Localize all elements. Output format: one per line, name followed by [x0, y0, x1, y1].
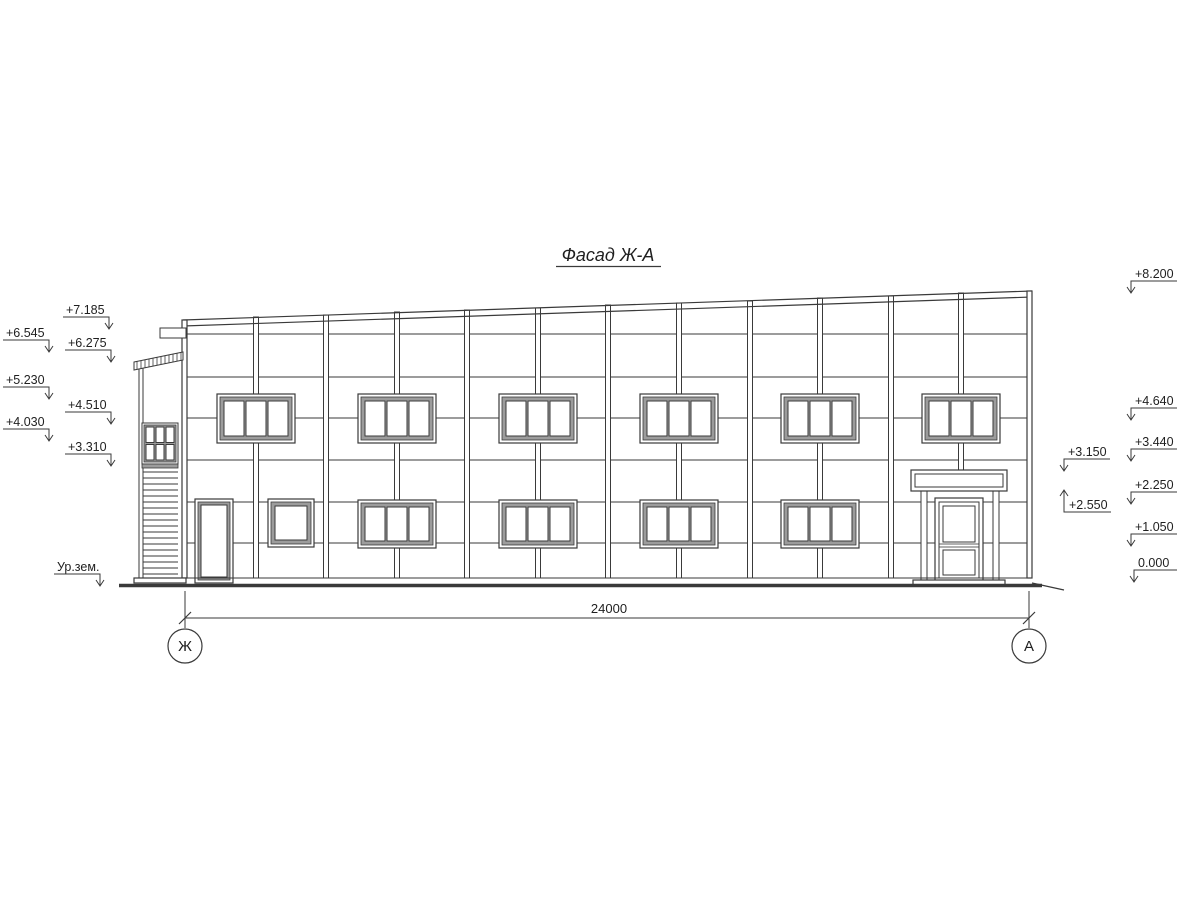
entrance [911, 470, 1007, 586]
elevation-value: +2.250 [1135, 478, 1174, 492]
elevation-value: +2.550 [1069, 498, 1108, 512]
dimension-label: 24000 [591, 601, 627, 616]
stair-tower-left-wall [139, 362, 143, 578]
facade-drawing-canvas: Фасад Ж-А [0, 0, 1200, 900]
elevation-value: +3.440 [1135, 435, 1174, 449]
entrance-door [935, 498, 983, 582]
elevation-value: 0.000 [1138, 556, 1169, 570]
page-title: Фасад Ж-А [562, 245, 655, 265]
elevation-value: +6.545 [6, 326, 45, 340]
elevation-mark: +4.030 [3, 415, 53, 441]
triple-window [217, 394, 295, 443]
elevation-mark: +5.230 [3, 373, 53, 399]
elevation-mark: +3.310 [65, 440, 115, 466]
elevation-mark: 0.000 [1130, 556, 1177, 582]
stair-tower-window [142, 423, 178, 464]
elevation-mark: +7.185 [63, 303, 113, 329]
entrance-canopy [911, 470, 1007, 491]
side-door [195, 499, 233, 583]
dimension: 24000 Ж А [168, 591, 1046, 663]
axis-marker-zh: Ж [168, 629, 202, 663]
triple-window [499, 394, 577, 443]
square-window [268, 499, 314, 547]
axis-marker-a: А [1012, 629, 1046, 663]
stair-tower [134, 352, 186, 583]
triple-window [640, 500, 718, 548]
elevation-mark: +4.640 [1127, 394, 1177, 420]
elevation-marks-canopy: +3.150 +2.550 [1060, 445, 1111, 512]
elevation-value: +3.310 [68, 440, 107, 454]
elevation-mark: +3.150 [1060, 445, 1110, 471]
elevation-mark: +1.050 [1127, 520, 1177, 546]
triple-window [358, 394, 436, 443]
canopy-post-right [993, 491, 999, 581]
elevation-value: +5.230 [6, 373, 45, 387]
elevation-mark: +2.550 [1060, 490, 1111, 512]
elevation-value: +8.200 [1135, 267, 1174, 281]
right-wall-edge [1027, 291, 1032, 578]
drawing-title: Фасад Ж-А [556, 245, 661, 267]
ground-level-label: Ур.зем. [57, 560, 99, 574]
elevation-value: +4.030 [6, 415, 45, 429]
triple-window [922, 394, 1000, 443]
elevation-value: +1.050 [1135, 520, 1174, 534]
triple-window [781, 500, 859, 548]
elevation-value: +3.150 [1068, 445, 1107, 459]
stair-tower-plinth [134, 578, 186, 583]
elevation-mark: +2.250 [1127, 478, 1177, 504]
left-ledge [160, 328, 186, 338]
facade-elevation-svg: Фасад Ж-А [0, 0, 1200, 900]
elevation-value: +4.510 [68, 398, 107, 412]
elevation-marks-right: +8.200 +4.640 +3.440 +2.250 +1.050 0.000 [1127, 267, 1177, 582]
canopy-post-left [921, 491, 927, 581]
elevation-mark: +6.275 [65, 336, 115, 362]
elevation-value: +4.640 [1135, 394, 1174, 408]
stair-treads [143, 472, 178, 574]
elevation-mark: +6.545 [3, 326, 53, 352]
triple-window [640, 394, 718, 443]
elevation-value: +7.185 [66, 303, 105, 317]
triple-window [499, 500, 577, 548]
ground-level-mark: Ур.зем. [54, 560, 104, 586]
axis-label-right: А [1024, 638, 1034, 655]
elevation-marks-left: +7.185 +6.545 +6.275 +5.230 +4.510 +4.03… [3, 303, 115, 586]
axis-label-left: Ж [178, 638, 192, 655]
elevation-mark: +8.200 [1127, 267, 1177, 293]
elevation-mark: +4.510 [65, 398, 115, 424]
elevation-mark: +3.440 [1127, 435, 1177, 461]
stair-tower-sill [142, 464, 178, 468]
triple-window [781, 394, 859, 443]
elevation-value: +6.275 [68, 336, 107, 350]
triple-window [358, 500, 436, 548]
